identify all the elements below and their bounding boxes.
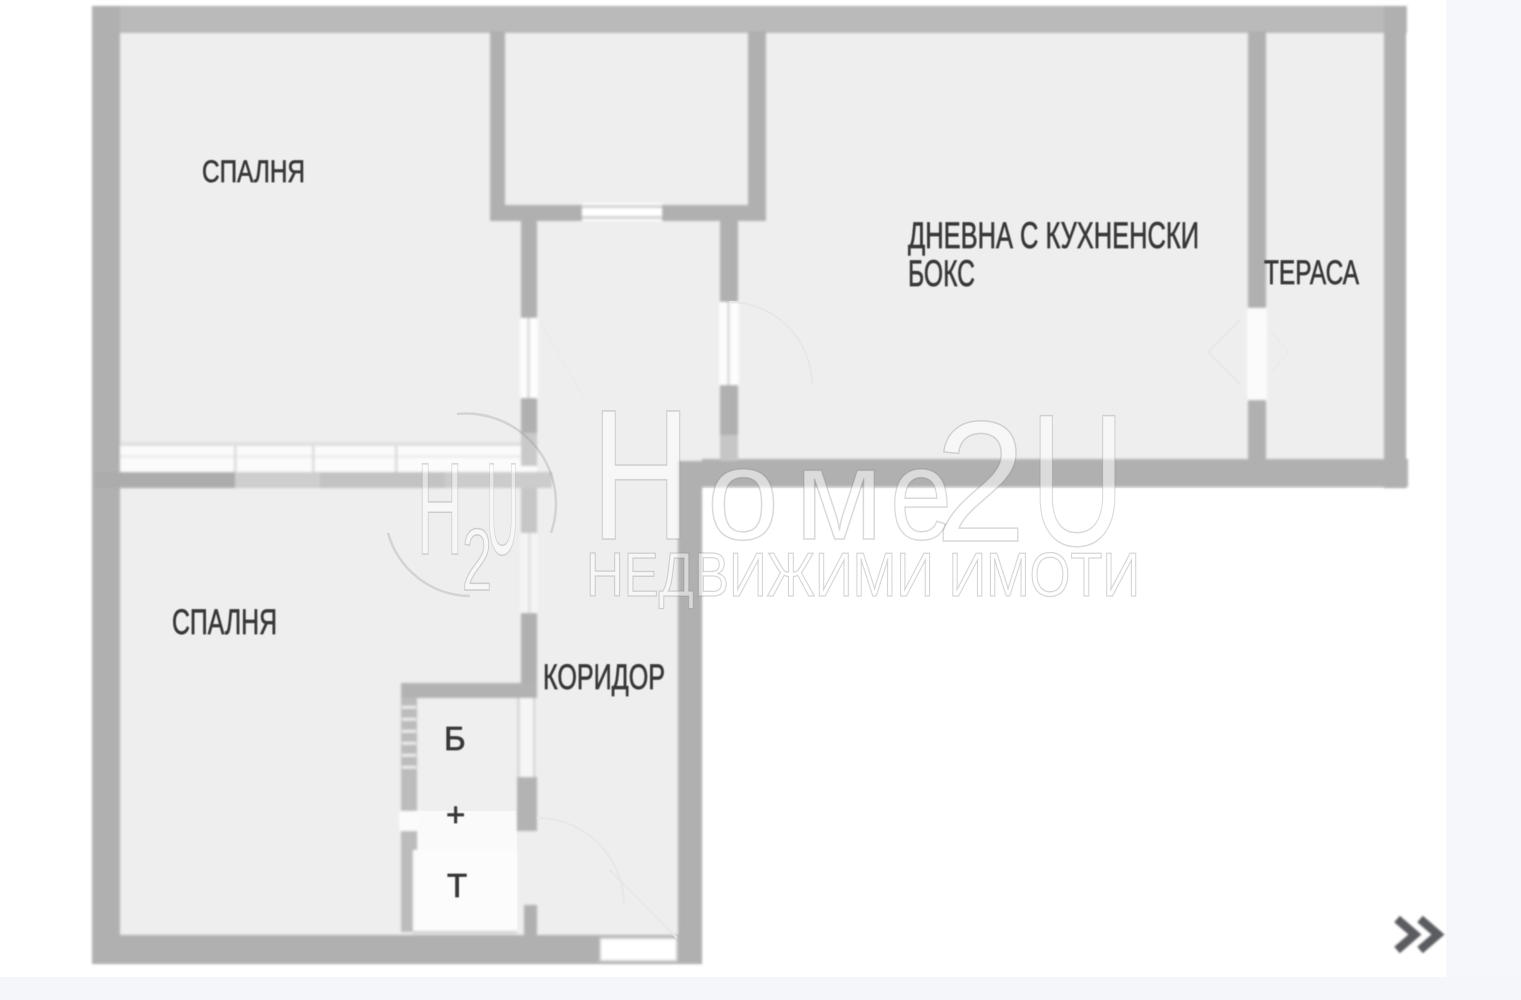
svg-text:Т: Т	[447, 867, 467, 904]
svg-text:ТЕРАСА: ТЕРАСА	[1264, 254, 1359, 292]
svg-text:БОКС: БОКС	[908, 253, 975, 294]
svg-text:+: +	[446, 796, 465, 833]
svg-text:ДНЕВНА С КУХНЕНСКИ: ДНЕВНА С КУХНЕНСКИ	[908, 215, 1199, 256]
svg-text:Б: Б	[444, 720, 466, 757]
svg-text:H: H	[417, 435, 463, 582]
svg-text:СПАЛНЯ: СПАЛНЯ	[172, 603, 277, 642]
svg-text:КОРИДОР: КОРИДОР	[543, 658, 665, 697]
svg-text:U: U	[486, 435, 519, 582]
svg-text:СПАЛНЯ: СПАЛНЯ	[202, 153, 305, 189]
svg-text:НЕДВИЖИМИ ИМОТИ: НЕДВИЖИМИ ИМОТИ	[586, 541, 1140, 610]
